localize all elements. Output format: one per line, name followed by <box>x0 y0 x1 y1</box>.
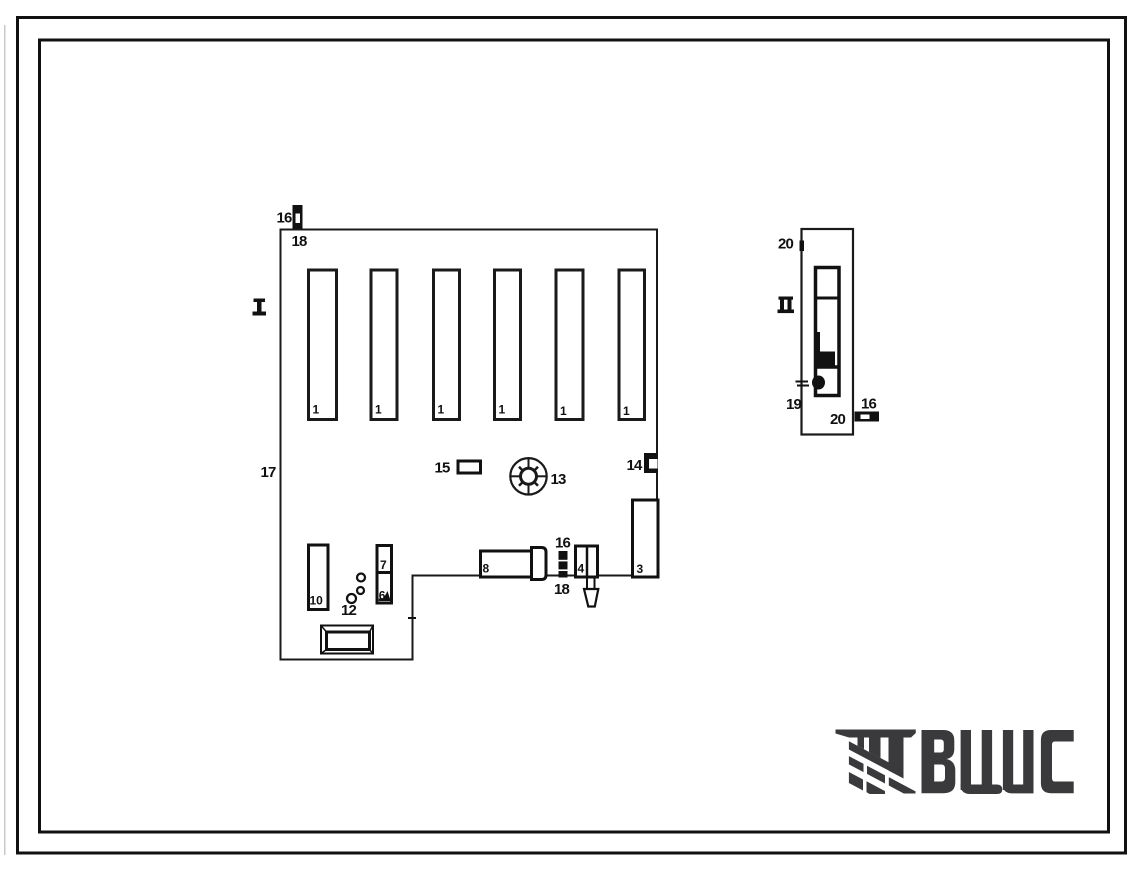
svg-text:1: 1 <box>499 403 506 417</box>
svg-text:13: 13 <box>551 471 567 488</box>
svg-text:1: 1 <box>623 404 630 418</box>
svg-text:20: 20 <box>778 236 794 253</box>
svg-text:14: 14 <box>627 457 644 474</box>
svg-text:18: 18 <box>554 581 570 598</box>
svg-text:16: 16 <box>861 396 877 413</box>
svg-text:1: 1 <box>375 403 382 417</box>
svg-text:19: 19 <box>786 396 802 413</box>
svg-text:1: 1 <box>438 403 445 417</box>
svg-text:10: 10 <box>310 594 324 608</box>
svg-text:17: 17 <box>261 464 277 481</box>
svg-text:20: 20 <box>830 411 846 428</box>
svg-text:8: 8 <box>483 562 490 576</box>
svg-text:4: 4 <box>578 562 585 576</box>
svg-text:1: 1 <box>560 404 567 418</box>
svg-text:15: 15 <box>435 460 451 477</box>
svg-text:18: 18 <box>292 233 308 250</box>
svg-text:6: 6 <box>379 589 386 603</box>
svg-text:1: 1 <box>313 403 320 417</box>
svg-text:12: 12 <box>341 602 357 619</box>
svg-text:16: 16 <box>555 535 571 552</box>
svg-text:3: 3 <box>637 562 644 576</box>
svg-text:7: 7 <box>380 558 387 572</box>
svg-text:16: 16 <box>277 210 293 227</box>
